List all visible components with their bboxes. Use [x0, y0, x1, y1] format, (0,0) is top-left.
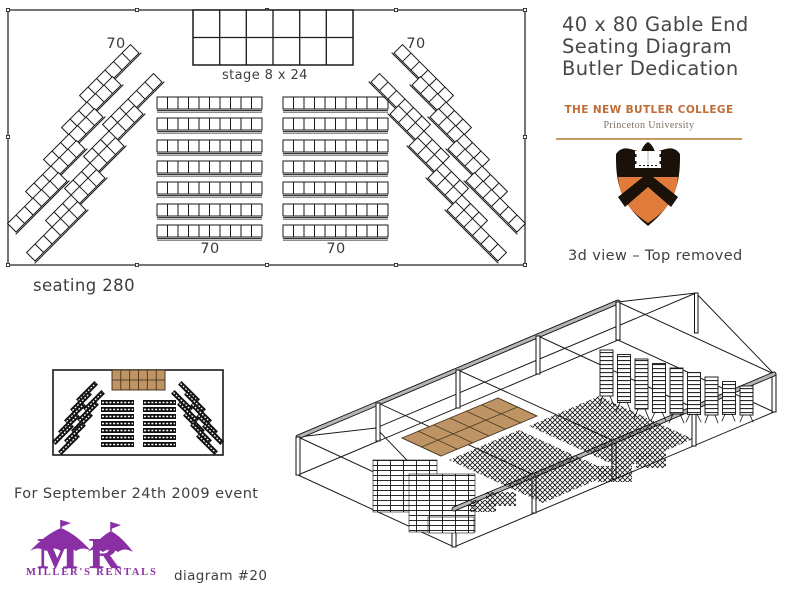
- college-divider: [556, 138, 742, 140]
- sheet-title-line-1: 40 x 80 Gable End: [562, 14, 794, 36]
- count-left-angled: 70: [99, 36, 133, 52]
- view3d-caption: 3d view – Top removed: [568, 248, 743, 264]
- diagram-sheet: MR MILLER'S RENTALS 40 x 80 Gable End Se…: [0, 0, 794, 600]
- center-right-chair-block: [283, 97, 388, 240]
- right-angled-chair-section: [369, 43, 527, 263]
- seating-total-label: seating 280: [33, 276, 135, 295]
- left-chairs-3d-blocks: [373, 460, 475, 533]
- left-angled-chair-section: [6, 43, 164, 263]
- shield-book-icon: [634, 151, 663, 168]
- millers-rentals-logo: MR MILLER'S RENTALS: [26, 520, 158, 578]
- tent-posts: [296, 293, 776, 547]
- diagram-graphics: MR MILLER'S RENTALS: [0, 0, 794, 600]
- princeton-shield: [616, 142, 680, 226]
- view-3d: [296, 293, 776, 547]
- flag-icon-left: [61, 520, 71, 527]
- college-name: THE NEW BUTLER COLLEGE: [553, 104, 745, 116]
- sheet-title-line-2: Seating Diagram: [562, 36, 794, 58]
- mini-floor-plan: [52, 370, 224, 455]
- sheet-title-line-3: Butler Dedication: [562, 58, 794, 80]
- count-center-right: 70: [319, 241, 353, 257]
- center-left-chair-block: [157, 97, 262, 240]
- flag-icon-right: [111, 522, 121, 529]
- logo-company: MILLER'S RENTALS: [26, 567, 158, 578]
- diagram-number: diagram #20: [174, 568, 267, 584]
- event-note: For September 24th 2009 event: [14, 486, 258, 502]
- count-center-left: 70: [193, 241, 227, 257]
- stage-grid: [193, 10, 353, 65]
- main-floor-plan: [6, 8, 527, 266]
- mini-stage: [112, 370, 165, 390]
- stage-label: stage 8 x 24: [222, 68, 308, 83]
- count-right-angled: 70: [399, 36, 433, 52]
- college-university: Princeton University: [553, 120, 745, 131]
